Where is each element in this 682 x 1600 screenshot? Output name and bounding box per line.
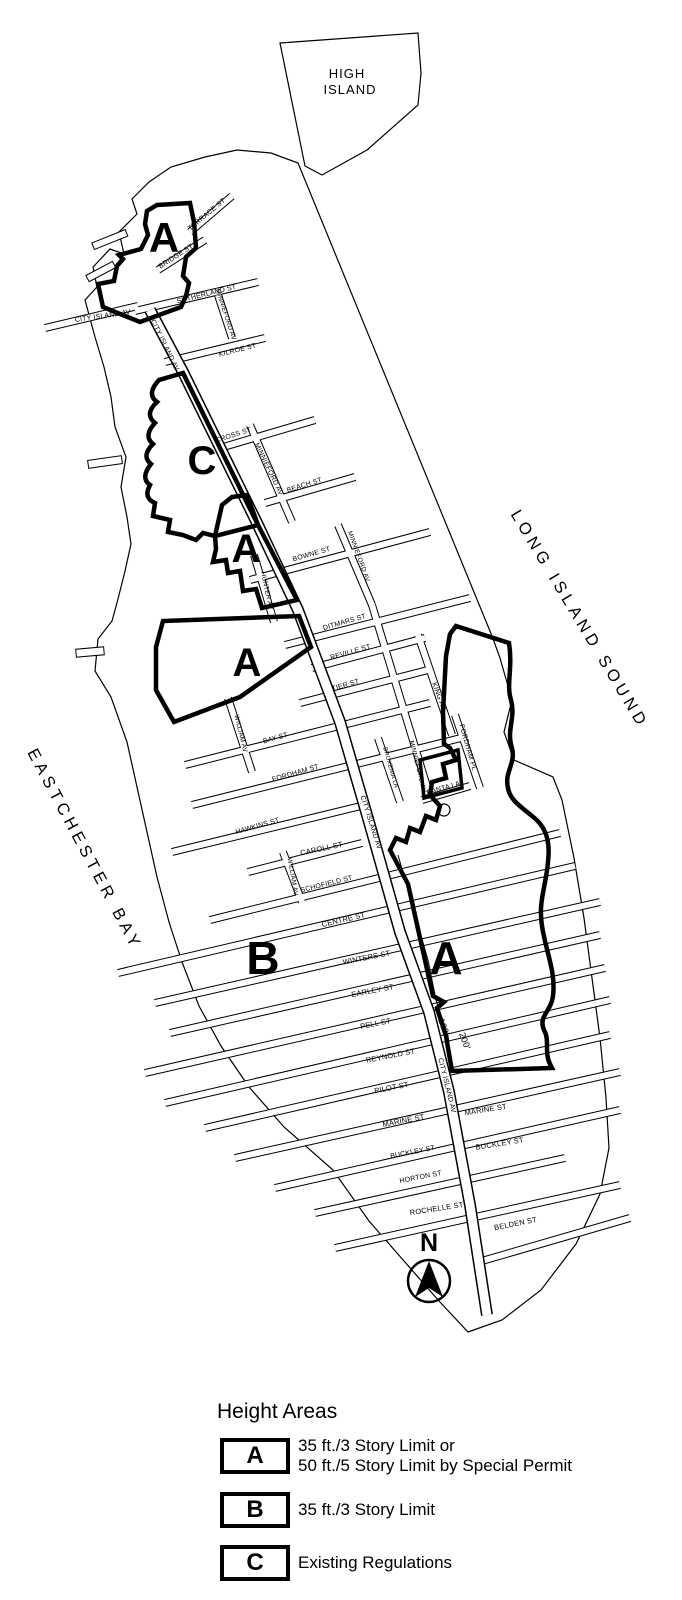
long-island-sound-label: LONG ISLAND SOUND — [507, 507, 652, 732]
map-page: LONG ISLAND SOUND EASTCHESTER BAY HIGH I… — [0, 0, 682, 1600]
legend-text-b: 35 ft./3 Story Limit — [298, 1500, 435, 1520]
legend-key-b: B — [246, 1496, 263, 1524]
legend-title: Height Areas — [217, 1400, 337, 1424]
zone-a-mid-letter: A — [232, 527, 261, 571]
legend-text-a: 35 ft./3 Story Limit or 50 ft./5 Story L… — [298, 1436, 572, 1476]
legend-a-line2: 50 ft./5 Story Limit by Special Permit — [298, 1456, 572, 1476]
zone-c-letter: C — [188, 439, 217, 483]
zone-a-east-letter: A — [429, 932, 462, 984]
zone-a-north-letter: A — [149, 214, 179, 261]
legend-box-a: A — [220, 1438, 290, 1474]
high-island-label-line2: ISLAND — [324, 82, 377, 97]
legend-box-b: B — [220, 1492, 290, 1528]
legend-key-c: C — [246, 1549, 263, 1577]
high-island-outline — [280, 33, 421, 175]
legend-key-a: A — [246, 1442, 263, 1470]
legend-text-c: Existing Regulations — [298, 1553, 452, 1573]
eastchester-bay-label: EASTCHESTER BAY — [23, 746, 145, 954]
north-label: N — [420, 1229, 438, 1257]
zone-a-rect-letter: A — [233, 641, 262, 685]
zone-b-letter: B — [246, 932, 279, 984]
legend-a-line1: 35 ft./3 Story Limit or — [298, 1436, 572, 1456]
city-island-map: LONG ISLAND SOUND EASTCHESTER BAY HIGH I… — [0, 0, 682, 1600]
high-island-label-line1: HIGH — [329, 66, 366, 81]
legend-box-c: C — [220, 1545, 290, 1581]
